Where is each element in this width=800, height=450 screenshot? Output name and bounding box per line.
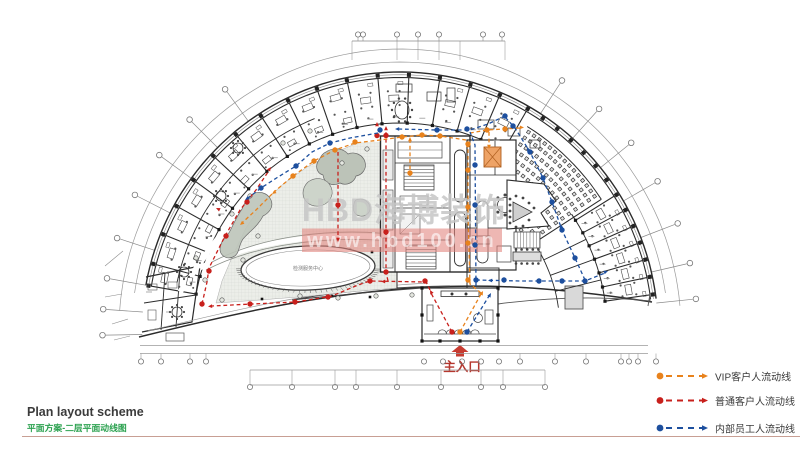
svg-text:平面方案-二层平面动线图: 平面方案-二层平面动线图	[27, 422, 127, 433]
svg-text:内部员工人流动线: 内部员工人流动线	[715, 423, 795, 436]
svg-text:Plan layout scheme: Plan layout scheme	[27, 405, 144, 419]
svg-text:主入口: 主入口	[443, 359, 481, 374]
svg-text:普通客户人流动线: 普通客户人流动线	[715, 395, 795, 408]
svg-text:检测服务中心: 检测服务中心	[293, 265, 323, 272]
svg-text:VIP客户人流动线: VIP客户人流动线	[715, 371, 791, 384]
